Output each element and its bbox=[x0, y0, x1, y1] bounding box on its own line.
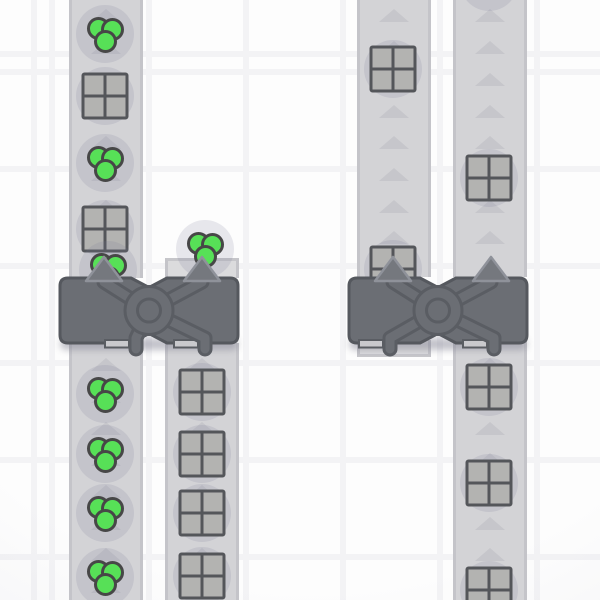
belt-arrow-icon bbox=[379, 168, 409, 181]
green-circle bbox=[94, 30, 117, 53]
square-quadrant bbox=[182, 515, 201, 534]
square-quadrant bbox=[204, 578, 223, 597]
item-gray-square bbox=[370, 46, 417, 93]
item-green-circles bbox=[85, 557, 125, 597]
square-quadrant bbox=[204, 394, 223, 413]
square-quadrant bbox=[469, 367, 488, 386]
square-quadrant bbox=[469, 158, 488, 177]
game-viewport bbox=[0, 0, 600, 600]
input-arrow-icon bbox=[375, 257, 411, 281]
input-arrow-icon bbox=[473, 257, 509, 281]
square-quadrant bbox=[469, 463, 488, 482]
square-quadrant bbox=[182, 456, 201, 475]
square-quadrant bbox=[182, 434, 201, 453]
acceptor-slot bbox=[105, 340, 129, 348]
balancer-building[interactable] bbox=[341, 248, 535, 363]
square-quadrant bbox=[182, 556, 201, 575]
item-green-circles bbox=[85, 374, 125, 414]
conveyor-belt-4-segment-1[interactable] bbox=[453, 0, 527, 277]
item-green-circles bbox=[85, 493, 125, 533]
square-quadrant bbox=[491, 570, 510, 589]
square-quadrant bbox=[182, 493, 201, 512]
item-gray-square bbox=[179, 553, 226, 600]
square-quadrant bbox=[491, 592, 510, 600]
square-quadrant bbox=[491, 389, 510, 408]
square-quadrant bbox=[204, 515, 223, 534]
square-quadrant bbox=[373, 71, 392, 90]
item-gray-square bbox=[179, 431, 226, 478]
square-quadrant bbox=[85, 98, 104, 117]
item-gray-square bbox=[179, 490, 226, 537]
belt-arrow-icon bbox=[475, 231, 505, 244]
belt-arrow-icon bbox=[475, 517, 505, 530]
belt-arrow-icon bbox=[475, 41, 505, 54]
green-circle bbox=[94, 159, 117, 182]
belt-arrow-icon bbox=[475, 105, 505, 118]
square-quadrant bbox=[182, 372, 201, 391]
square-quadrant bbox=[491, 158, 510, 177]
square-quadrant bbox=[469, 592, 488, 600]
square-quadrant bbox=[182, 394, 201, 413]
square-quadrant bbox=[373, 49, 392, 68]
input-arrow-icon bbox=[86, 257, 122, 281]
square-quadrant bbox=[469, 180, 488, 199]
item-green-circles bbox=[85, 143, 125, 183]
green-circle bbox=[94, 573, 117, 596]
square-quadrant bbox=[469, 570, 488, 589]
item-green-circles bbox=[85, 434, 125, 474]
green-circle bbox=[94, 450, 117, 473]
square-quadrant bbox=[491, 463, 510, 482]
item-gray-square bbox=[82, 73, 129, 120]
belt-arrow-icon bbox=[379, 105, 409, 118]
green-circle bbox=[94, 390, 117, 413]
square-quadrant bbox=[204, 434, 223, 453]
belt-arrow-icon bbox=[475, 422, 505, 435]
balancer-building[interactable] bbox=[52, 248, 246, 363]
square-quadrant bbox=[469, 389, 488, 408]
square-quadrant bbox=[204, 456, 223, 475]
belt-arrow-icon bbox=[379, 9, 409, 22]
square-quadrant bbox=[395, 49, 414, 68]
balancer-left[interactable] bbox=[52, 248, 246, 363]
square-quadrant bbox=[107, 76, 126, 95]
square-quadrant bbox=[204, 556, 223, 575]
center-hub-inner bbox=[427, 299, 450, 322]
item-gray-square bbox=[466, 364, 513, 411]
item-gray-square bbox=[466, 460, 513, 507]
belt-arrow-icon bbox=[475, 73, 505, 86]
acceptor-slot bbox=[359, 340, 383, 348]
square-quadrant bbox=[107, 98, 126, 117]
square-quadrant bbox=[182, 578, 201, 597]
square-quadrant bbox=[469, 485, 488, 504]
center-hub-inner bbox=[138, 299, 161, 322]
belt-arrow-icon bbox=[475, 136, 505, 149]
belt-arrow-icon bbox=[379, 200, 409, 213]
square-quadrant bbox=[491, 180, 510, 199]
item-green-circles bbox=[85, 14, 125, 54]
square-quadrant bbox=[85, 209, 104, 228]
green-circle bbox=[94, 509, 117, 532]
square-quadrant bbox=[85, 76, 104, 95]
square-quadrant bbox=[395, 71, 414, 90]
belt-arrow-icon bbox=[379, 136, 409, 149]
item-gray-square bbox=[466, 567, 513, 600]
input-arrow-icon bbox=[184, 257, 220, 281]
balancer-right[interactable] bbox=[341, 248, 535, 363]
square-quadrant bbox=[107, 209, 126, 228]
belt-arrow-icon bbox=[475, 9, 505, 22]
square-quadrant bbox=[204, 493, 223, 512]
square-quadrant bbox=[491, 485, 510, 504]
square-quadrant bbox=[491, 367, 510, 386]
belt-arrow-icon bbox=[475, 548, 505, 561]
item-gray-square bbox=[179, 369, 226, 416]
item-gray-square bbox=[466, 155, 513, 202]
square-quadrant bbox=[204, 372, 223, 391]
